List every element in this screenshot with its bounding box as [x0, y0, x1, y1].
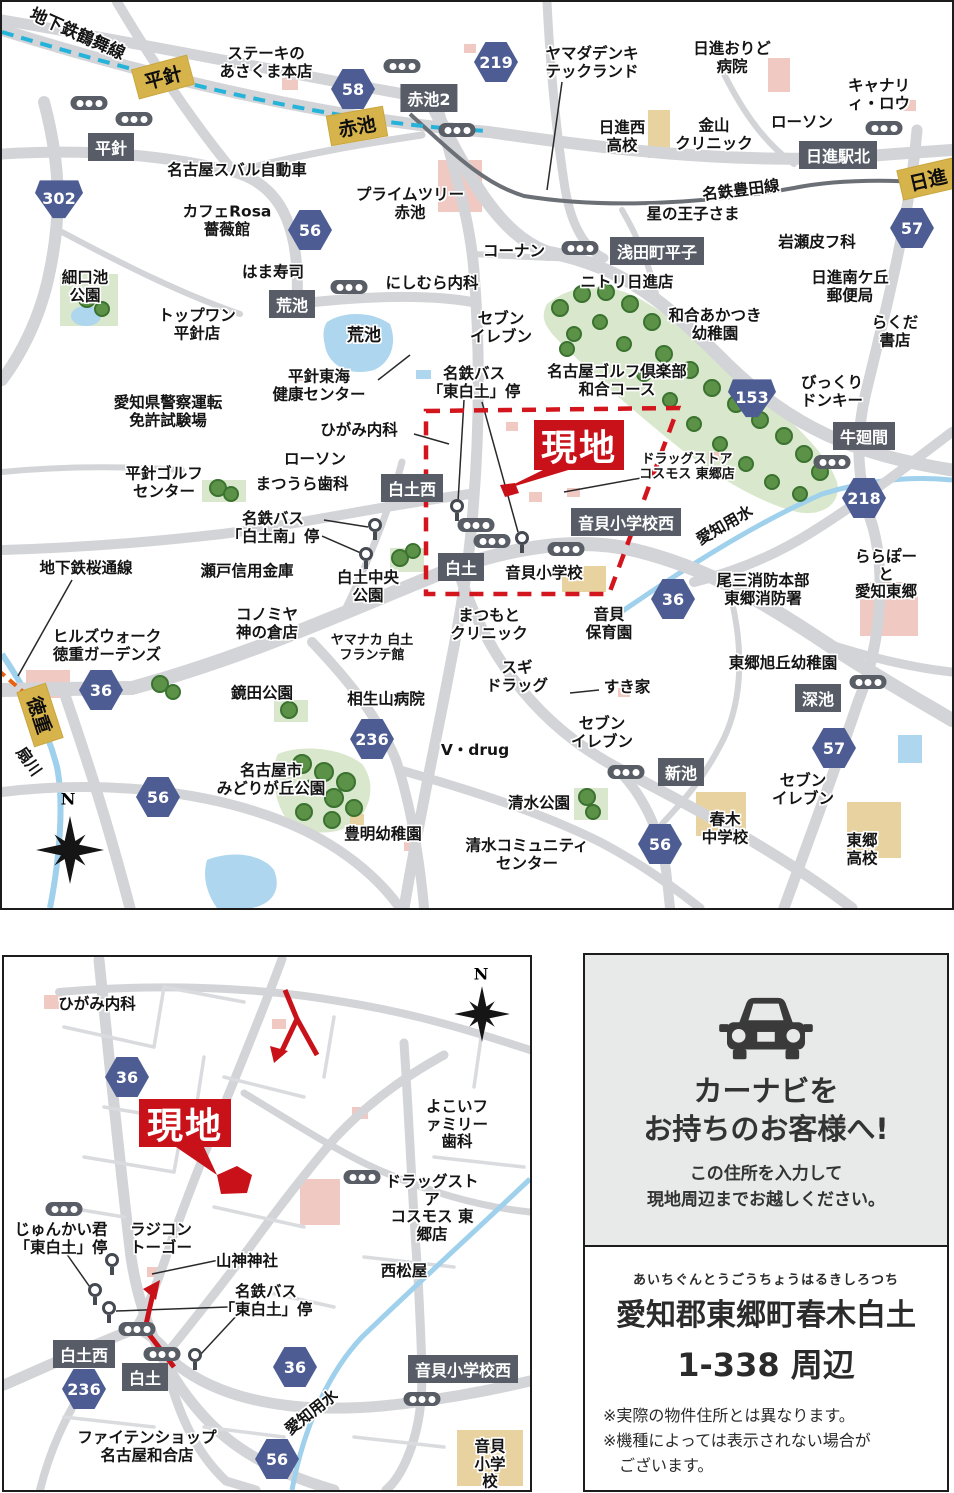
place-label: プライムツリー 赤池: [356, 186, 464, 221]
intersection-badge: 牛廻間: [833, 422, 895, 450]
address-main: 愛知郡東郷町春木白土: [585, 1290, 947, 1334]
place-label: 鏡田公園: [231, 685, 293, 703]
carnav-instruction: この住所を入力して 現地周辺までお越しください。: [585, 1162, 947, 1213]
place-label: ローソン: [284, 451, 346, 469]
place-label: 豊明幼稚園: [344, 826, 422, 844]
place-label: セブン イレブン: [772, 772, 834, 807]
intersection-badge: 音貝小学校西: [571, 508, 681, 536]
place-label: 東郷 高校: [846, 832, 877, 867]
bus-stop-icon: [368, 518, 382, 540]
place-label: 清水コミュニティ センター: [465, 837, 588, 872]
carnav-panel: カーナビを お持ちのお客様へ! この住所を入力して 現地周辺までお越しください。…: [583, 953, 949, 1492]
place-label: ラジコン トーゴー: [130, 1221, 192, 1256]
place-label: 名鉄バス 「白土南」停: [226, 510, 319, 545]
subway-line-label: 地下鉄桜通線: [39, 560, 132, 578]
place-label: じゅんかい君 「東白土」停: [14, 1221, 107, 1256]
place-label: カフェRosa 薔薇館: [183, 203, 272, 238]
compass-rose-icon: [454, 986, 510, 1042]
place-label: 相生山病院: [347, 691, 425, 709]
traffic-light-icon: [71, 96, 108, 110]
place-label: ヤマダデンキ テックランド: [545, 45, 638, 80]
place-label: セブン イレブン: [470, 310, 532, 345]
address-sub: 1-338 周辺: [585, 1340, 947, 1386]
place-label: ステーキの あさくま本店: [219, 45, 312, 80]
place-label: 白土中央 公園: [337, 569, 399, 604]
place-label: ドラッグストア コスモス 東郷店: [639, 453, 735, 483]
traffic-light-icon: [474, 534, 511, 548]
place-label: ヤマナカ 白土 フランテ館: [331, 634, 414, 664]
place-label: ニトリ日進店: [580, 274, 673, 292]
place-label: はま寿司: [242, 264, 304, 282]
place-label: 日進おりど 病院: [693, 40, 771, 75]
traffic-light-icon: [384, 59, 421, 73]
intersection-badge: 深池: [795, 684, 841, 712]
bus-stop-icon: [105, 1253, 119, 1275]
address-block: あいちぐんとうごうちょうはるきしろつち 愛知郡東郷町春木白土 1-338 周辺 …: [585, 1247, 947, 1478]
intersection-badge: 白土西: [381, 474, 443, 502]
intersection-badge: 赤池2: [400, 84, 457, 112]
intersection-badge: 白土: [438, 553, 484, 581]
main-area-map: 地下鉄鶴舞線 名鉄豊田線 平針 赤池 日進 徳重 平針 赤池2 荒池 浅田町平子…: [0, 0, 954, 910]
place-label: 清水公園: [508, 795, 570, 813]
place-label: 平針ゴルフ センター: [125, 465, 203, 500]
place-label: 山神神社: [216, 1253, 278, 1271]
carnav-info: カーナビを お持ちのお客様へ! この住所を入力して 現地周辺までお越しください。: [585, 955, 947, 1247]
bus-stop-icon: [359, 547, 373, 569]
site-callout: 現地: [534, 420, 624, 470]
traffic-light-icon: [404, 1392, 441, 1406]
place-label: びっくり ドンキー: [801, 374, 863, 409]
place-label: スギ ドラッグ: [486, 659, 548, 694]
traffic-light-icon: [850, 675, 887, 689]
place-label: まつうら歯科: [255, 476, 348, 494]
place-label: 音貝 小学校: [470, 1439, 510, 1492]
carnav-title-line2: お持ちのお客様へ!: [585, 1111, 947, 1149]
intersection-badge: 白土: [122, 1363, 168, 1391]
traffic-light-icon: [344, 1170, 381, 1184]
intersection-badge: 荒池: [269, 290, 315, 318]
place-label: 愛知県警察運転 免許試験場: [114, 394, 223, 429]
place-label: 岩瀬皮フ科: [778, 234, 856, 252]
place-label: 星の王子さま: [646, 206, 739, 224]
traffic-light-icon: [119, 1322, 156, 1336]
intersection-badge: 音貝小学校西: [408, 1355, 518, 1383]
place-label: らくだ書店: [867, 314, 924, 349]
traffic-light-icon: [562, 241, 599, 255]
bus-stop-icon: [188, 1348, 202, 1370]
place-label: 名鉄バス 「東白土」停: [427, 365, 520, 400]
traffic-light-icon: [548, 542, 585, 556]
car-icon: [716, 991, 816, 1069]
detail-area-map: 現地 白土西 白土 音貝小学校西 36 236 56 36 愛知用水 N ひがみ…: [2, 955, 532, 1492]
place-label: 細口池 公園: [62, 269, 109, 304]
place-label: トップワン 平針店: [158, 307, 236, 342]
traffic-light-icon: [144, 1347, 181, 1361]
traffic-light-icon: [46, 1202, 83, 1216]
place-label: ららぽーと 愛知東郷: [853, 549, 919, 602]
place-label: 名古屋ゴルフ倶楽部 和合コース: [547, 363, 687, 398]
place-label: セブン イレブン: [571, 715, 633, 750]
intersection-badge: 白土西: [53, 1340, 115, 1368]
bus-stop-icon: [102, 1301, 116, 1323]
bus-stop-icon: [88, 1283, 102, 1305]
place-label: 名鉄バス 「東白土」停: [219, 1283, 312, 1318]
place-label: ファイテンショップ 名古屋和合店: [77, 1429, 216, 1464]
place-label: ひがみ内科: [320, 422, 398, 440]
place-label: 平針東海 健康センター: [272, 368, 365, 403]
intersection-badge: 平針: [88, 133, 134, 161]
place-label: 東郷旭丘幼稚園: [729, 655, 838, 673]
place-label: にしむら内科: [385, 275, 478, 293]
traffic-light-icon: [608, 765, 645, 779]
address-furigana: あいちぐんとうごうちょうはるきしろつち: [585, 1269, 947, 1288]
place-label: 日進西 高校: [599, 119, 646, 154]
place-label: コノミヤ 神の倉店: [236, 606, 298, 641]
intersection-badge: 新池: [658, 758, 704, 786]
place-label: すき家: [604, 679, 651, 697]
place-label: V・drug: [441, 742, 509, 760]
place-label: 尾三消防本部 東郷消防署: [716, 572, 809, 607]
traffic-light-icon: [866, 121, 903, 135]
place-label: コーナン: [483, 243, 545, 261]
address-notes: ※実際の物件住所とは異なります。 ※機種によっては表示されない場合が ございます…: [603, 1404, 933, 1478]
intersection-badge: 浅田町平子: [610, 237, 704, 265]
traffic-light-icon: [116, 112, 153, 126]
place-label: ローソン: [771, 114, 833, 132]
compass-north-label: N: [474, 965, 489, 984]
place-label: よこいファミリー 歯科: [421, 1099, 494, 1152]
place-label: 名古屋市 みどりが丘公園: [217, 762, 326, 797]
pond-label: 荒池: [347, 326, 381, 345]
place-label: 西松屋: [381, 1263, 428, 1281]
traffic-light-icon: [439, 123, 476, 137]
carnav-title-line1: カーナビを: [585, 1073, 947, 1111]
site-callout: 現地: [139, 1099, 231, 1147]
place-label: 和合あかつき 幼稚園: [668, 307, 761, 342]
place-label: 瀬戸信用金庫: [200, 563, 293, 581]
traffic-light-icon: [814, 455, 851, 469]
place-label: 音貝小学校: [505, 565, 583, 583]
intersection-badge: 日進駅北: [799, 141, 877, 169]
compass-north-label: N: [61, 790, 76, 809]
bus-stop-icon: [450, 499, 464, 521]
compass-rose-icon: [36, 816, 104, 884]
place-label: 日進南ケ丘 郵便局: [811, 269, 889, 304]
place-label: まつもと クリニック: [450, 607, 528, 642]
place-label: ヒルズウォーク 徳重ガーデンズ: [53, 628, 162, 663]
place-label: ひがみ内科: [58, 996, 136, 1014]
place-label: キャナリィ・ロウ: [843, 77, 916, 112]
bus-stop-icon: [515, 531, 529, 553]
traffic-light-icon: [331, 280, 368, 294]
place-label: 名古屋スバル自動車: [167, 162, 307, 180]
place-label: 春木 中学校: [702, 811, 749, 846]
place-label: ドラッグストア コスモス 東郷店: [383, 1174, 481, 1245]
place-label: 金山 クリニック: [675, 117, 753, 152]
place-label: 音貝 保育園: [586, 606, 633, 641]
